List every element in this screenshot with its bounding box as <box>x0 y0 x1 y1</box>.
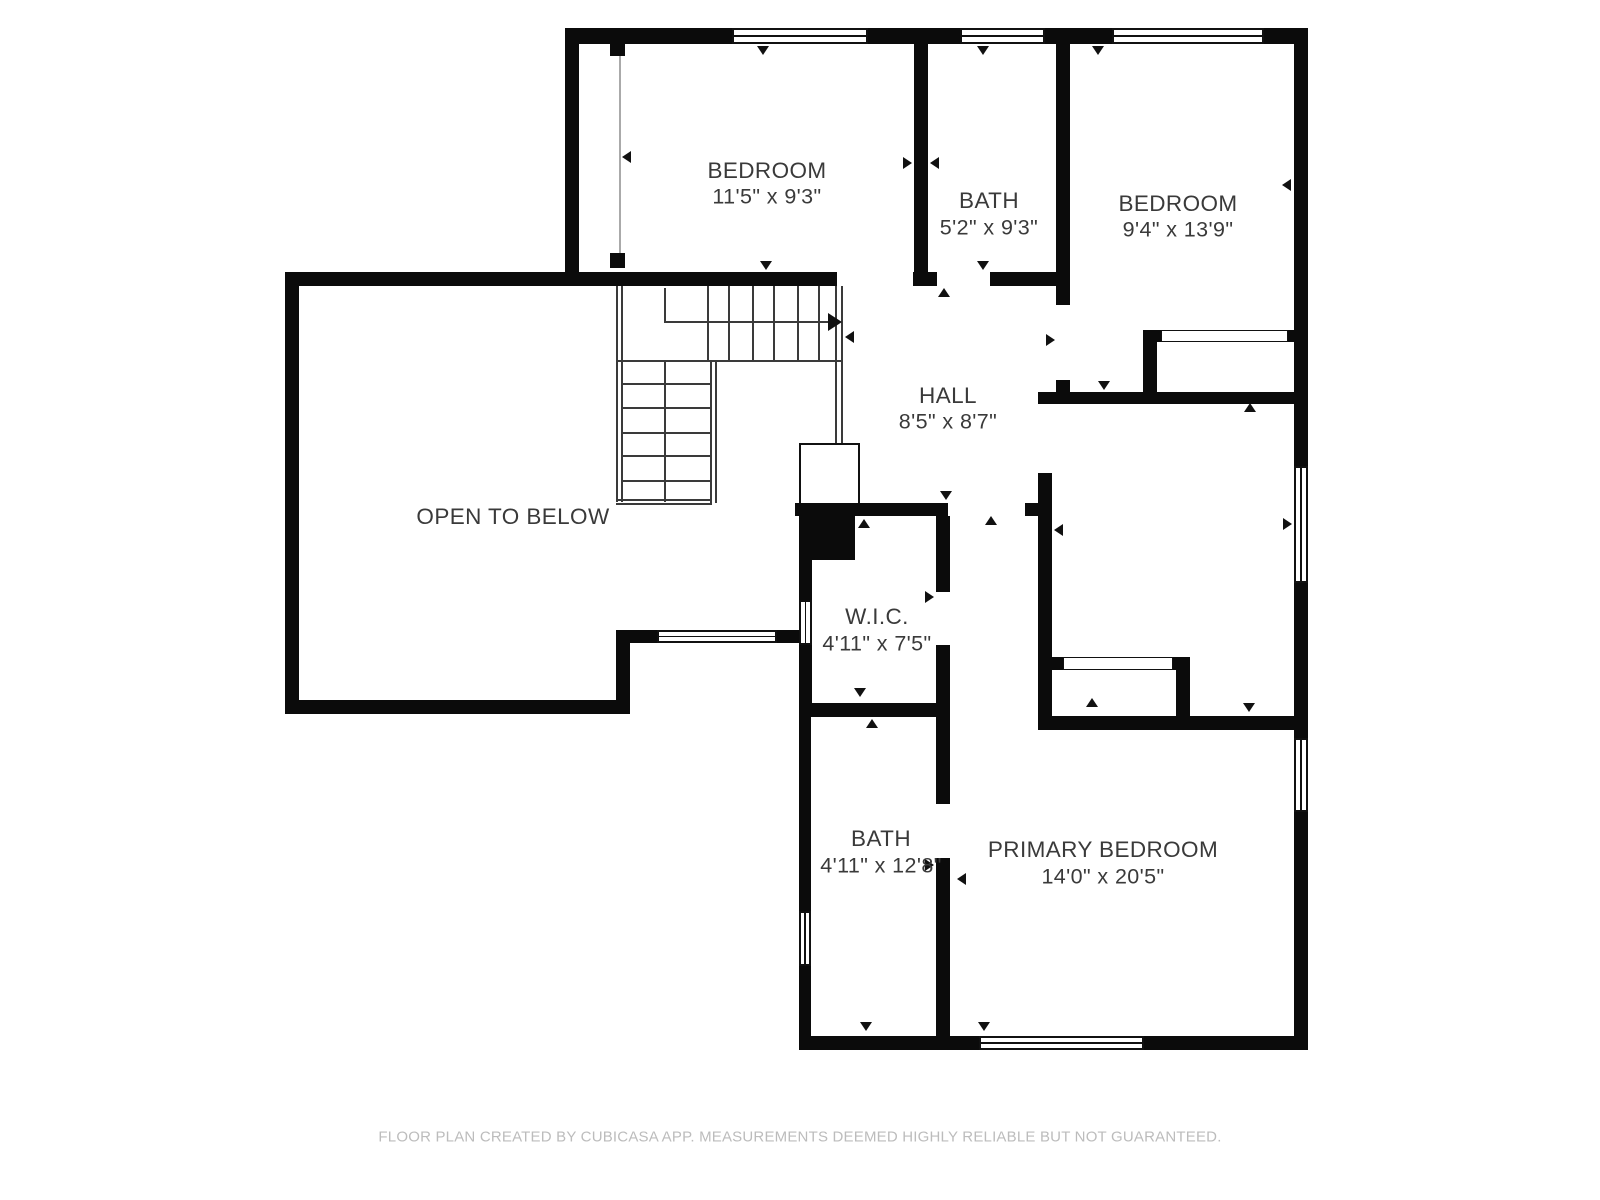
floor-plan: BEDROOM 11'5" x 9'3" BATH 5'2" x 9'3" BE… <box>0 0 1600 1200</box>
wall-closet-tl-jamb-top <box>610 42 625 56</box>
closet-door-bedroom-tr <box>1161 330 1288 342</box>
wall-primary-top <box>1038 716 1294 730</box>
room-dims-wic: 4'11" x 7'5" <box>822 632 931 657</box>
wall-exterior-left-bedroom <box>565 28 579 286</box>
room-label-bath-main: BATH <box>851 826 911 852</box>
marker-arrow-icon <box>930 157 939 169</box>
room-label-wic: W.I.C. <box>845 604 909 630</box>
wall-bath-left <box>799 717 811 1036</box>
marker-arrow-icon <box>854 688 866 697</box>
wall-bedroom-bath <box>914 44 928 286</box>
marker-arrow-icon <box>1092 46 1104 55</box>
closet-slider-line <box>619 56 621 253</box>
room-label-bath-top: BATH <box>959 188 1019 214</box>
room-label-hall: HALL <box>919 383 977 409</box>
room-label-bedroom-top-right: BEDROOM <box>1118 191 1237 217</box>
marker-arrow-icon <box>1283 518 1292 530</box>
room-label-primary-bedroom: PRIMARY BEDROOM <box>988 837 1218 863</box>
room-dims-primary-bedroom: 14'0" x 20'5" <box>1041 865 1164 890</box>
wall-open-below-step <box>616 630 630 714</box>
wall-wic-right-upper <box>936 516 950 592</box>
wall-closet-tl-jamb-bottom <box>610 253 625 268</box>
room-dims-bedroom-top-right: 9'4" x 13'9" <box>1123 218 1234 243</box>
closet-door-bedroom-mid <box>1063 657 1173 670</box>
wall-open-below-left <box>285 272 299 714</box>
marker-arrow-icon <box>938 288 950 297</box>
marker-arrow-icon <box>1054 524 1063 536</box>
window-bedroom-tr-top <box>1112 28 1264 44</box>
marker-arrow-icon <box>858 519 870 528</box>
room-dims-hall: 8'5" x 8'7" <box>899 410 997 435</box>
wall-closet-mid-left <box>1038 657 1063 670</box>
stair-direction-line <box>664 288 666 323</box>
marker-arrow-icon <box>903 157 912 169</box>
marker-arrow-icon <box>860 1022 872 1031</box>
marker-arrow-icon <box>940 491 952 500</box>
wall-mid-band-bath-right <box>990 272 1070 286</box>
marker-arrow-icon <box>1282 179 1291 191</box>
stair-direction-arrow-icon <box>828 313 842 331</box>
marker-arrow-icon <box>978 1022 990 1031</box>
marker-arrow-icon <box>1046 334 1055 346</box>
wall-wic-bottom <box>799 703 948 717</box>
window-bedroom-tl-top <box>732 28 868 44</box>
marker-arrow-icon <box>1244 403 1256 412</box>
window-primary-right <box>1294 738 1308 812</box>
window-primary-bottom <box>979 1036 1144 1050</box>
wall-bath-bedroom-right-upper <box>1056 44 1070 305</box>
wall-mid-band-bath-left <box>913 272 937 286</box>
room-dims-bath-top: 5'2" x 9'3" <box>940 216 1038 241</box>
marker-arrow-icon <box>760 261 772 270</box>
marker-arrow-icon <box>622 151 631 163</box>
window-wic-left <box>799 600 812 645</box>
wall-bath-primary-lower <box>936 858 950 1036</box>
marker-arrow-icon <box>1098 381 1110 390</box>
marker-arrow-icon <box>925 591 934 603</box>
wall-hall-bottom-left <box>795 503 948 516</box>
room-label-bedroom-top-left: BEDROOM <box>707 158 826 184</box>
marker-arrow-icon <box>985 516 997 525</box>
marker-arrow-icon <box>1243 703 1255 712</box>
window-stairwell <box>657 630 777 643</box>
marker-arrow-icon <box>757 46 769 55</box>
window-bath-top <box>960 28 1045 44</box>
marker-arrow-icon <box>957 873 966 885</box>
marker-arrow-icon <box>845 331 854 343</box>
window-bath-left <box>799 911 811 966</box>
wall-closet-tr-cap <box>1288 330 1294 342</box>
marker-arrow-icon <box>866 719 878 728</box>
marker-arrow-icon <box>977 46 989 55</box>
window-bedroom-mid-right <box>1294 466 1308 583</box>
footer-disclaimer: FLOOR PLAN CREATED BY CUBICASA APP. MEAS… <box>378 1129 1221 1146</box>
wall-closet-mid-jamb <box>1173 657 1190 670</box>
wall-corridor-right <box>1038 473 1052 730</box>
room-dims-bedroom-top-left: 11'5" x 9'3" <box>712 185 821 210</box>
wall-closet-tr-jamb <box>1143 330 1161 342</box>
wall-closet-mid-side <box>1176 670 1190 716</box>
room-dims-bath-main: 4'11" x 12'8" <box>820 854 942 879</box>
wall-open-below-bottom <box>285 700 630 714</box>
marker-arrow-icon <box>1086 698 1098 707</box>
stair-landing <box>799 443 860 508</box>
wall-bath-primary-upper <box>936 717 950 804</box>
room-label-open-to-below: OPEN TO BELOW <box>416 504 609 530</box>
marker-arrow-icon <box>977 261 989 270</box>
wall-mid-band-left <box>285 272 837 286</box>
